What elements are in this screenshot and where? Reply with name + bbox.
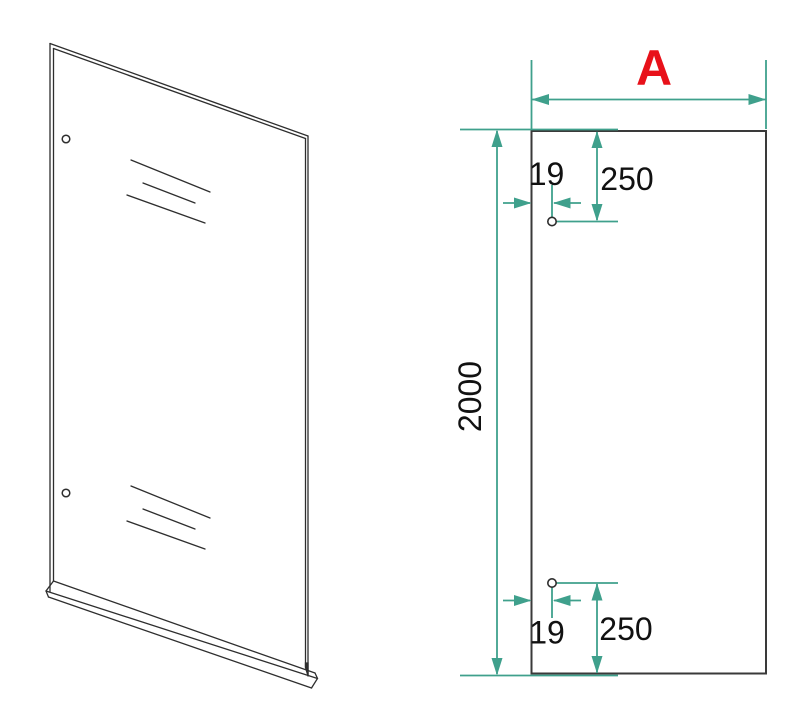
panel-top-edge-outer: [50, 44, 308, 137]
reflection-mark: [131, 160, 210, 192]
glass-panel-technical-drawing: A 2000 19 250 19 250: [0, 0, 800, 698]
width-variable-label: A: [636, 40, 672, 96]
arrowhead-top-offset-right: [514, 198, 532, 209]
panel-perspective-view: [46, 44, 318, 689]
arrowhead-bottom-offset-left: [553, 595, 571, 606]
arrowhead-height-top: [492, 130, 503, 148]
arrowhead-bottom-distance-down: [592, 656, 603, 674]
arrowhead-top-distance-down: [592, 204, 603, 222]
height-dimension-label: 2000: [452, 361, 488, 432]
arrowhead-bottom-distance-up: [592, 583, 603, 601]
panel-outline: [532, 131, 767, 674]
bottom-hole-offset-label: 19: [529, 615, 565, 651]
reflection-mark: [127, 195, 205, 223]
top-hole-offset-label: 19: [529, 156, 565, 192]
bottom-rail-lower-edge: [49, 597, 312, 688]
arrowhead-top-offset-left: [553, 198, 571, 209]
arrowhead-top-distance-up: [592, 131, 603, 148]
bottom-rail-front-edge: [46, 591, 318, 679]
bottom-mount-hole: [62, 489, 70, 497]
arrowhead-bottom-offset-right: [514, 595, 532, 606]
dimension-lines: [460, 60, 766, 676]
top-mount-hole: [548, 217, 556, 225]
bottom-rail-top-edge: [54, 581, 316, 673]
reflection-mark: [143, 183, 195, 203]
arrowhead-width-right: [749, 94, 767, 105]
bottom-rail-right-cap: [312, 673, 318, 688]
reflection-mark: [127, 521, 205, 549]
reflection-mark: [143, 509, 195, 529]
panel-dimension-view: A 2000 19 250 19 250: [452, 40, 766, 676]
bottom-mount-hole: [548, 579, 556, 587]
arrowhead-width-left: [532, 94, 550, 105]
arrowhead-height-bottom: [492, 658, 503, 676]
bottom-hole-distance-label: 250: [599, 611, 652, 647]
top-hole-distance-label: 250: [600, 161, 653, 197]
technical-drawing-page: A 2000 19 250 19 250: [0, 0, 800, 698]
reflection-mark: [131, 486, 210, 518]
panel-top-edge-inner: [54, 49, 306, 139]
top-mount-hole: [62, 135, 70, 143]
